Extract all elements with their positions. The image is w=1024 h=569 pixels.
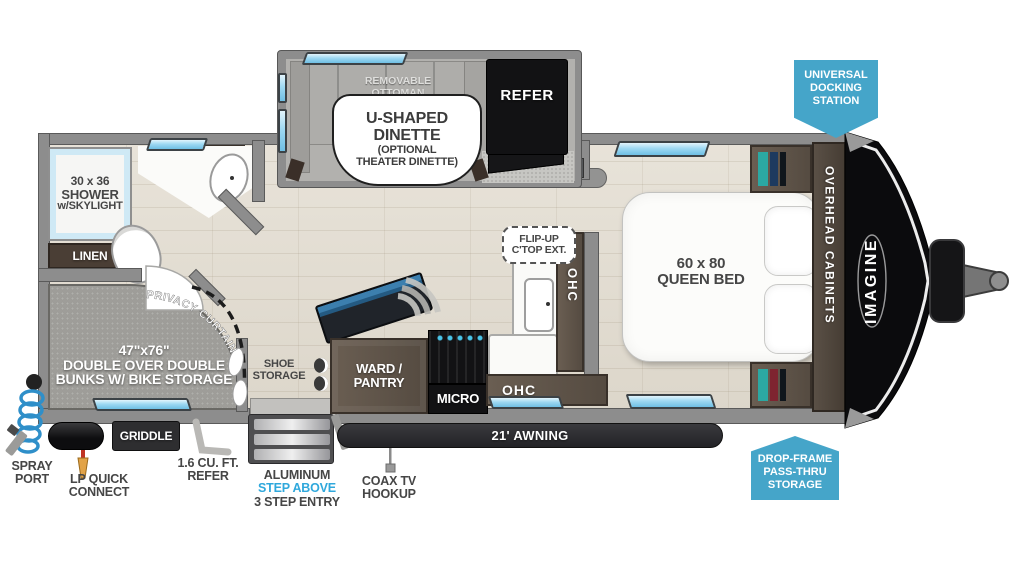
steps-label-3: 3 STEP ENTRY [254, 496, 340, 509]
hitch-coupler [990, 272, 1008, 290]
floorplan-canvas: 30 x 36 SHOWER w/SKYLIGHT LINEN 47"x76" … [0, 0, 1024, 569]
tv-swivel-arcs [398, 280, 438, 316]
ext-refer-label-2: REFER [187, 470, 228, 483]
propane-tanks [930, 240, 964, 322]
passthru-badge-line3: STORAGE [751, 479, 839, 492]
coax-line [386, 446, 395, 472]
lp-tank [48, 422, 104, 450]
griddle-label: GRIDDLE [120, 430, 173, 443]
docking-badge-line2: DOCKING [794, 82, 878, 95]
front-cap: IMAGINE [845, 132, 1008, 428]
spray-label-2: PORT [15, 473, 49, 486]
spray-port [5, 374, 43, 456]
passthru-badge-line1: DROP-FRAME [751, 453, 839, 466]
passthru-badge-line2: PASS-THRU [751, 466, 839, 479]
dinette-label-2: DINETTE [373, 128, 440, 145]
coax-label-1: COAX TV [362, 475, 416, 488]
coax-label: COAX TV HOOKUP [346, 470, 432, 506]
spray-port-label: SPRAY PORT [0, 455, 64, 491]
dinette-label-1: U-SHAPED [366, 111, 448, 128]
spray-label-1: SPRAY [12, 460, 53, 473]
exterior-refer-label: 1.6 CU. FT. REFER [168, 452, 248, 488]
flip-label-2: C'TOP EXT. [512, 245, 566, 256]
privacy-curtains-label: PRIVACY CURTAINS [0, 0, 239, 355]
lp-label-2: CONNECT [69, 486, 129, 499]
ext-refer-label-1: 1.6 CU. FT. [177, 457, 238, 470]
awning-label: 21' AWNING [491, 429, 568, 443]
awning-bar: 21' AWNING [337, 423, 723, 448]
steps-label-1: ALUMINUM [264, 469, 330, 482]
imagine-logo: IMAGINE [863, 238, 880, 324]
dinette-label-4: THEATER DINETTE) [356, 157, 458, 169]
dinette-bubble: U-SHAPED DINETTE (OPTIONAL THEATER DINET… [332, 94, 482, 186]
flip-up-bubble: FLIP-UP C'TOP EXT. [502, 226, 576, 264]
docking-badge-line3: STATION [794, 95, 878, 108]
docking-badge-line1: UNIVERSAL [794, 69, 878, 82]
lp-label-1: LP QUICK [70, 473, 128, 486]
griddle: GRIDDLE [112, 421, 180, 451]
lp-quick-connect-label: LP QUICK CONNECT [56, 468, 142, 504]
coax-label-2: HOOKUP [362, 488, 416, 501]
steps-label-2: STEP ABOVE [258, 482, 336, 495]
entry-steps-label: ALUMINUM STEP ABOVE 3 STEP ENTRY [246, 464, 348, 514]
exterior-refer-bracket [196, 422, 228, 452]
svg-text:PRIVACY CURTAINS: PRIVACY CURTAINS [0, 0, 239, 355]
